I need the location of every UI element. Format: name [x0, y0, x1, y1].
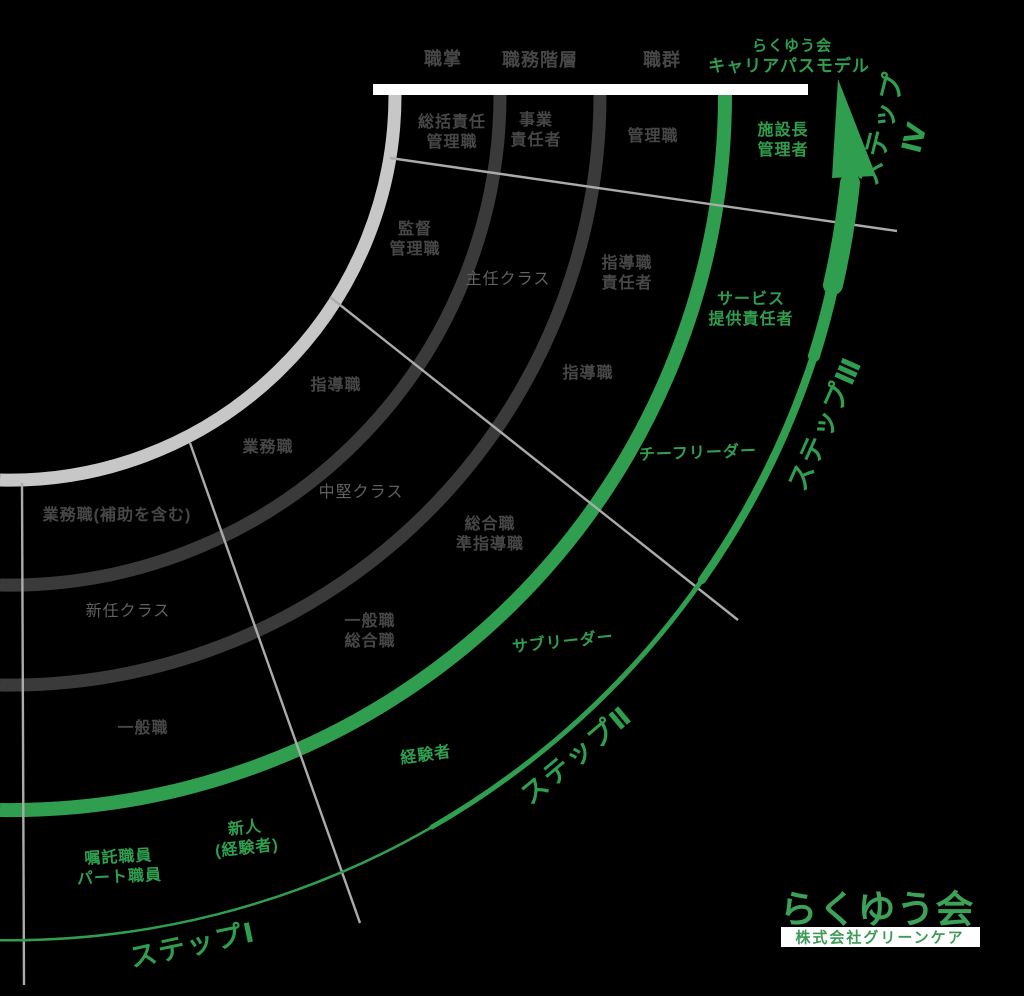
ring-cell-label: 事業 責任者 [510, 111, 561, 151]
ring-cell-label: 業務職(補助を含む) [43, 506, 192, 526]
ring-cell-label: 総括責任 管理職 [418, 113, 486, 153]
ring-cell-label: 一般職 総合職 [344, 612, 395, 652]
column-header: 職務階層 [502, 49, 578, 72]
ring-cell-label: 業務職 [242, 438, 293, 458]
ring-cell-label: 新任クラス [86, 602, 171, 622]
header-underline-bar [373, 84, 808, 95]
ring-cell-label: 新人 (経験者) [212, 816, 280, 862]
ring-cell-label: 施設長 管理者 [757, 121, 808, 161]
career-arrow-curve-4 [814, 285, 833, 356]
sector-divider-line-1 [390, 158, 897, 231]
ring-cell-label: 総合職 準指導職 [456, 515, 524, 555]
career-path-diagram: 職掌職務階層職群 らくゆう会 キャリアパスモデル 総括責任 管理職監督 管理職指… [0, 0, 1024, 996]
ring-cell-label: 一般職 [117, 719, 168, 739]
column-header: 職群 [643, 49, 681, 72]
column-header: 職掌 [424, 48, 462, 71]
ring-cell-label: 管理職 [627, 127, 678, 147]
logo-company-name: 株式会社グリーンケア [795, 927, 964, 948]
career-arrow-curve-5 [833, 183, 850, 285]
ring-cell-label: 指導職 [562, 364, 613, 384]
ring-cell-label: 指導職 [310, 376, 361, 396]
ring-arc-shokushou [0, 95, 395, 480]
logo-text: らくゆう会 [779, 879, 974, 934]
ring-cell-label: 嘱託職員 パート職員 [76, 846, 163, 890]
sector-divider-line-4 [22, 483, 24, 985]
career-arrow-curve-2 [432, 580, 702, 827]
ring-cell-label: 主任クラス [466, 270, 551, 290]
ring-cell-label: サービス 提供責任者 [708, 290, 793, 330]
diagram-title-model: キャリアパスモデル [708, 52, 870, 77]
ring-cell-label: チーフリーダー [639, 442, 758, 466]
ring-cell-label: 中堅クラス [319, 483, 404, 503]
ring-cell-label: 監督 管理職 [389, 220, 440, 260]
ring-cell-label: 指導職 責任者 [601, 254, 652, 294]
